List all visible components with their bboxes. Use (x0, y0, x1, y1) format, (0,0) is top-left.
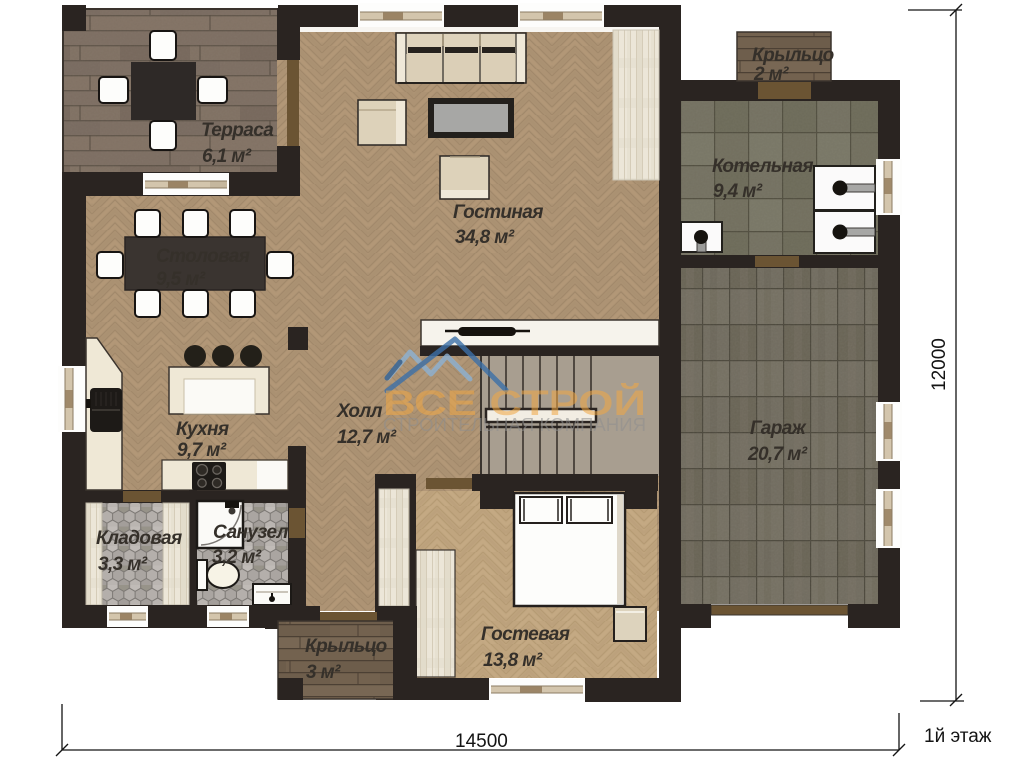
svg-text:Гостиная: Гостиная (453, 202, 543, 223)
svg-text:Терраса: Терраса (201, 120, 274, 141)
svg-text:Кладовая: Кладовая (96, 528, 182, 549)
svg-text:14500: 14500 (455, 731, 508, 752)
svg-text:Столовая: Столовая (156, 246, 250, 267)
svg-text:3,2 м²: 3,2 м² (212, 547, 262, 568)
svg-text:9,5 м²: 9,5 м² (156, 269, 206, 290)
svg-text:Кухня: Кухня (176, 419, 229, 440)
svg-text:Котельная: Котельная (712, 156, 813, 177)
svg-text:Холл: Холл (336, 401, 383, 422)
svg-text:6,1 м²: 6,1 м² (202, 146, 252, 167)
svg-text:Гараж: Гараж (750, 418, 807, 439)
svg-text:34,8 м²: 34,8 м² (455, 227, 515, 248)
svg-text:Гостевая: Гостевая (481, 624, 570, 645)
svg-text:12000: 12000 (929, 338, 950, 391)
svg-text:9,4 м²: 9,4 м² (713, 181, 763, 202)
svg-text:2 м²: 2 м² (753, 64, 789, 85)
svg-text:Крыльцо: Крыльцо (752, 45, 834, 66)
svg-text:3,3 м²: 3,3 м² (98, 554, 148, 575)
svg-text:9,7 м²: 9,7 м² (177, 440, 227, 461)
svg-text:3 м²: 3 м² (306, 662, 341, 683)
svg-text:20,7 м²: 20,7 м² (747, 444, 808, 465)
svg-text:13,8 м²: 13,8 м² (483, 650, 543, 671)
svg-text:1й этаж: 1й этаж (924, 726, 992, 747)
svg-text:Санузел: Санузел (213, 522, 289, 543)
svg-text:Крыльцо: Крыльцо (305, 636, 387, 657)
svg-text:СТРОИТЕЛЬНАЯ КОМПАНИЯ: СТРОИТЕЛЬНАЯ КОМПАНИЯ (383, 415, 646, 435)
